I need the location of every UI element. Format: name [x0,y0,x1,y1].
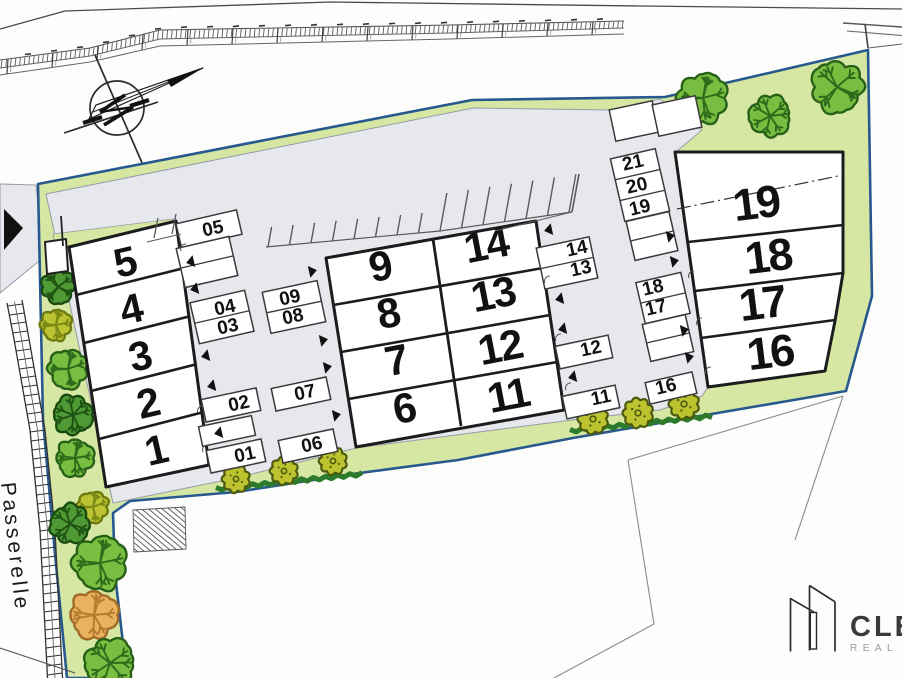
svg-text:12: 12 [578,337,603,362]
svg-text:CLEM: CLEM [850,611,902,643]
svg-text:17: 17 [736,275,789,331]
svg-text:REAL E: REAL E [850,643,902,654]
svg-text:13: 13 [568,257,593,282]
svg-text:16: 16 [744,324,797,380]
svg-text:12: 12 [474,320,526,375]
svg-text:02: 02 [226,392,251,417]
svg-text:13: 13 [467,267,519,322]
svg-text:06: 06 [299,433,324,458]
svg-text:08: 08 [280,305,305,330]
svg-text:07: 07 [292,381,317,406]
svg-text:19: 19 [730,175,783,231]
svg-text:03: 03 [215,315,240,340]
